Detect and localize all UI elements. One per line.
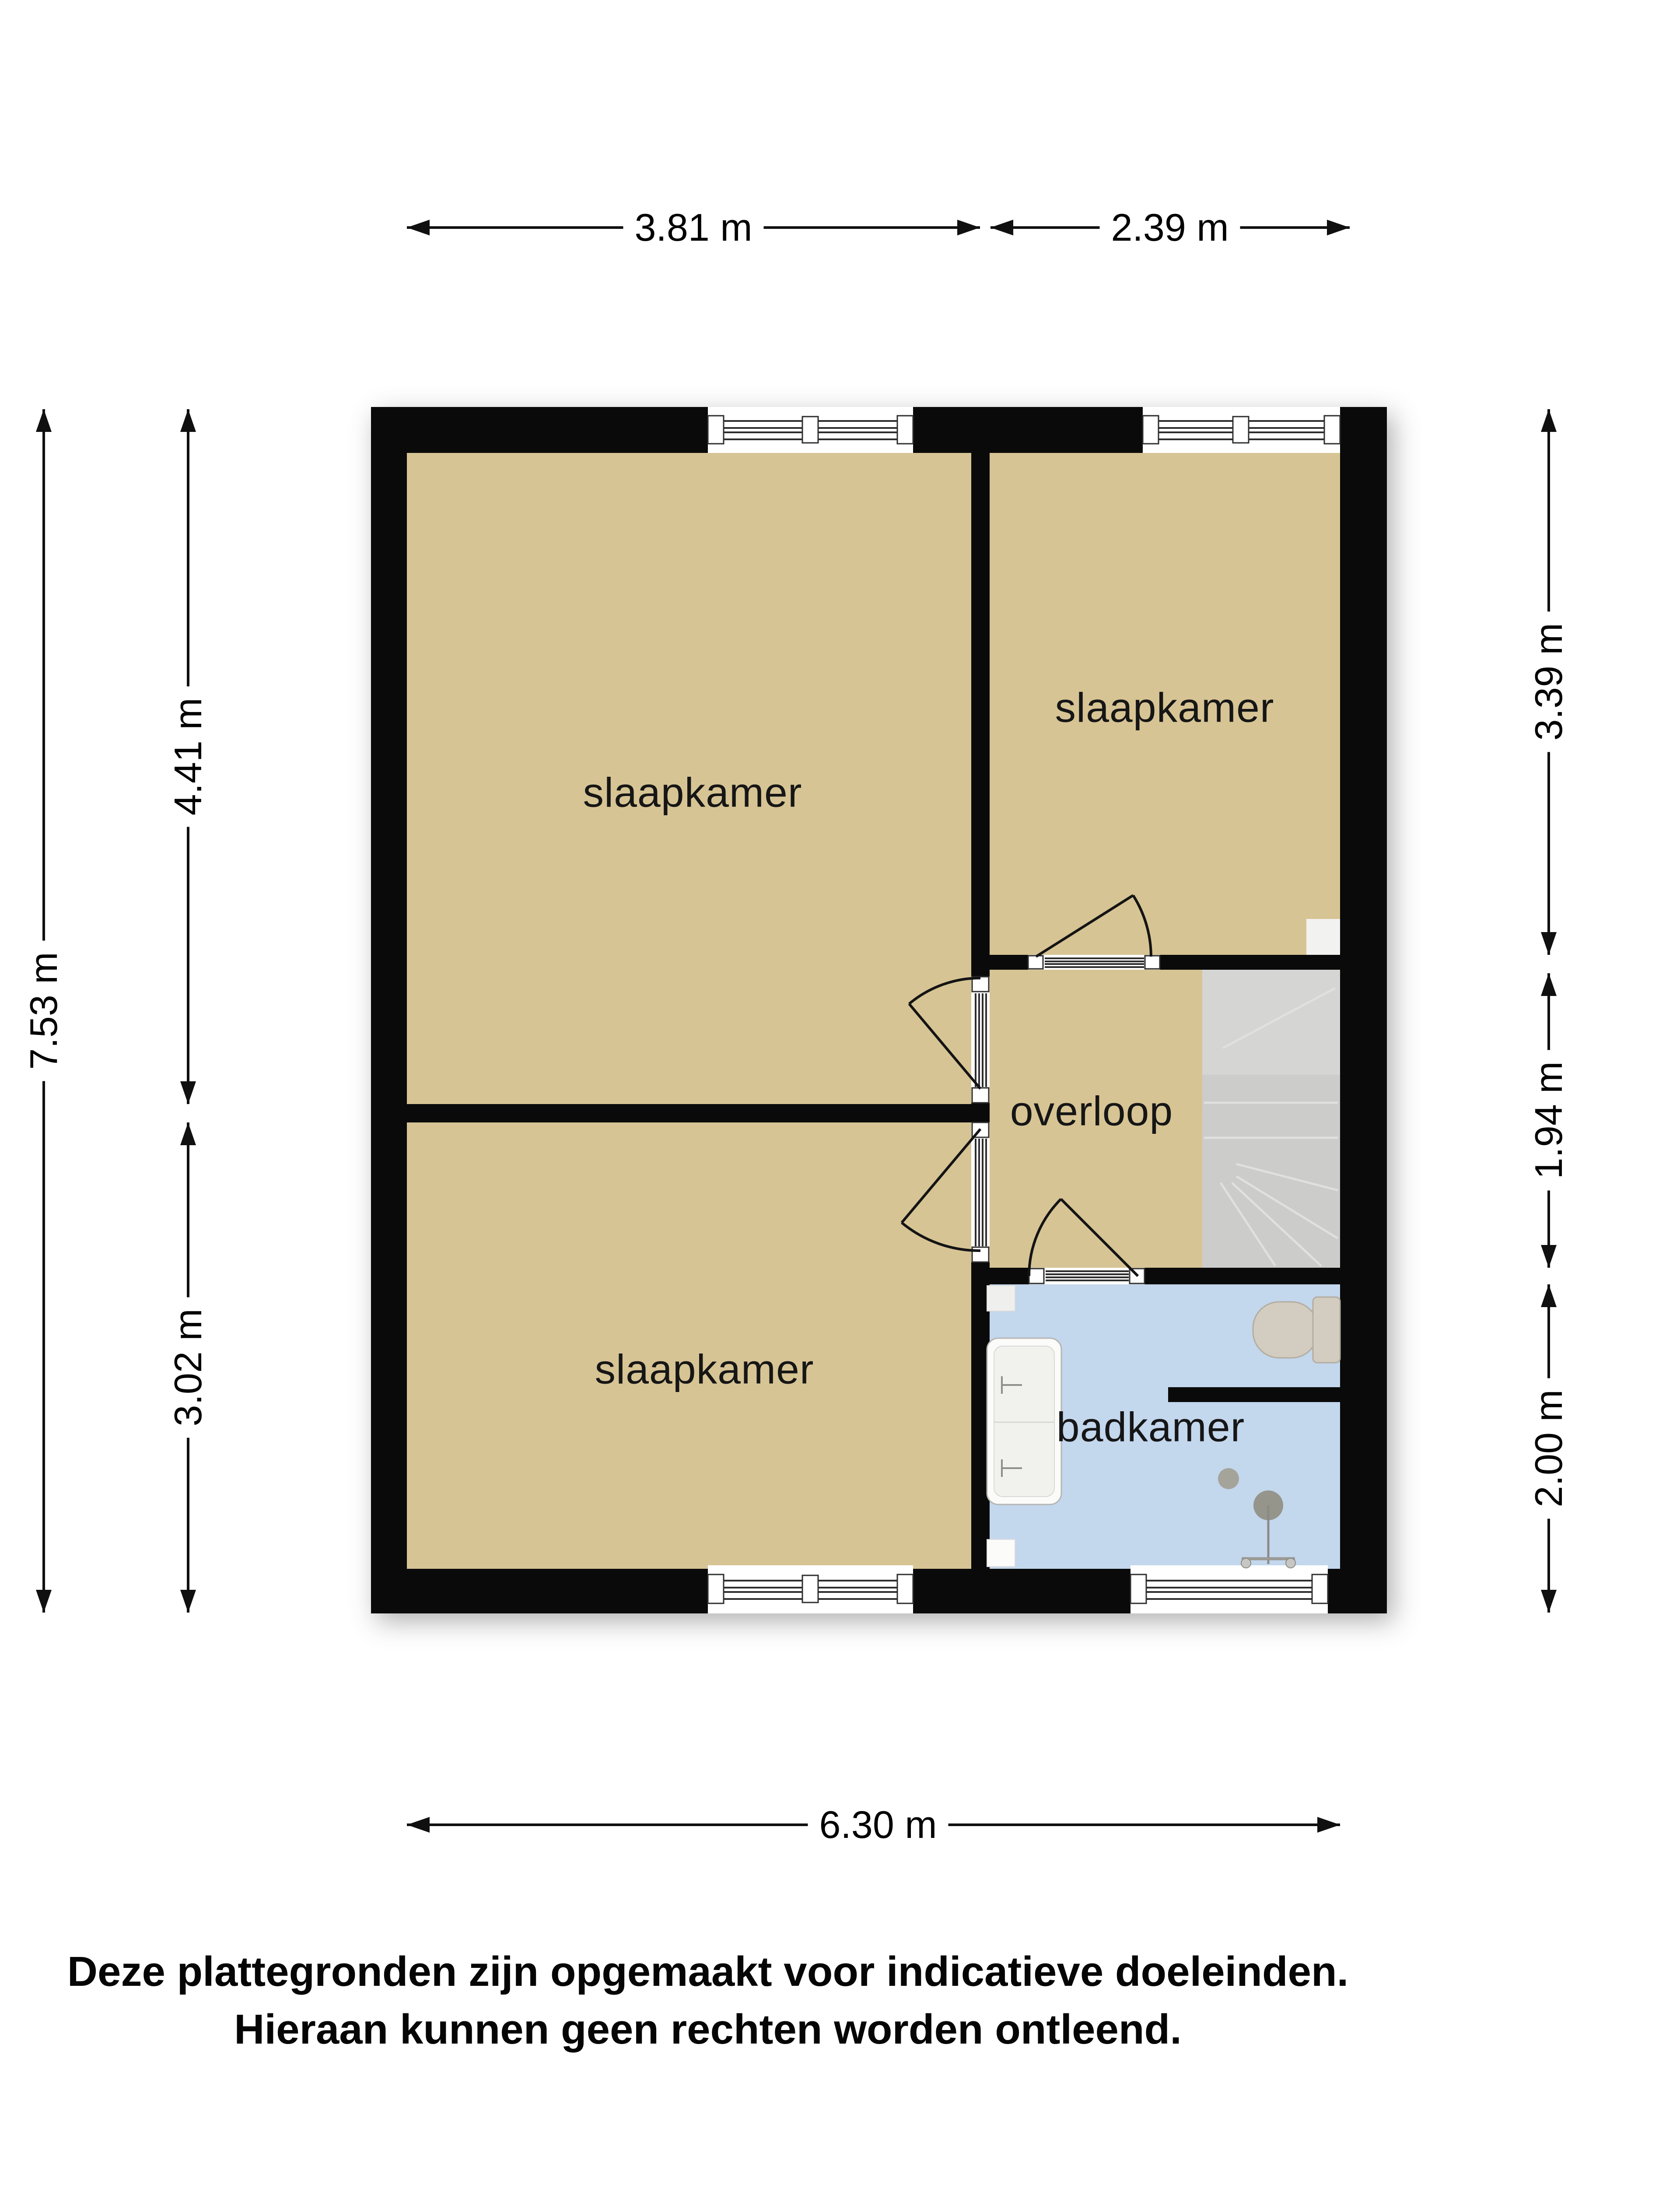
dimension-label-right-lower: 2.00 m xyxy=(1527,1378,1571,1518)
disclaimer-text: Deze plattegronden zijn opgemaakt voor i… xyxy=(0,1943,1416,2058)
disclaimer-line-2: Hieraan kunnen geen rechten worden ontle… xyxy=(0,2001,1416,2058)
door-frame-bedroom-top-right xyxy=(1028,955,1160,970)
door-frame-bedroom-top-left xyxy=(971,977,990,1103)
room-label-bedroom-bottom-left: slaapkamer xyxy=(595,1346,814,1394)
window-bottom-left xyxy=(708,1565,913,1613)
window-top-left xyxy=(708,407,913,453)
dimension-label-left-upper: 4.41 m xyxy=(166,686,210,827)
dimension-label-bottom: 6.30 m xyxy=(808,1803,948,1847)
dimension-label-right-upper: 3.39 m xyxy=(1527,611,1571,752)
window-top-right xyxy=(1143,407,1340,453)
stairwell-void xyxy=(1306,919,1340,955)
dimension-label-top-right: 2.39 m xyxy=(1099,206,1240,249)
door-frame-bathroom xyxy=(1029,1268,1144,1284)
washbasin-small xyxy=(987,1286,1015,1311)
bathtub xyxy=(987,1338,1061,1504)
dimension-label-top-left: 3.81 m xyxy=(623,206,763,249)
dimension-label-right-middle: 1.94 m xyxy=(1527,1050,1571,1190)
door-frame-bedroom-bottom-left xyxy=(971,1122,990,1262)
room-label-bedroom-top-right: slaapkamer xyxy=(1055,684,1274,732)
disclaimer-line-1: Deze plattegronden zijn opgemaakt voor i… xyxy=(0,1943,1416,2001)
window-bathroom xyxy=(1130,1565,1328,1613)
room-label-bathroom: badkamer xyxy=(1057,1404,1245,1452)
dimension-label-left-total: 7.53 m xyxy=(22,940,66,1081)
shower-drain-icon xyxy=(1218,1468,1239,1489)
dimension-label-left-lower: 3.02 m xyxy=(166,1297,210,1438)
bathroom-stub-wall xyxy=(1168,1387,1352,1402)
bathroom-cabinet xyxy=(987,1539,1015,1567)
floorplan-drawing xyxy=(0,0,1680,2188)
room-label-landing: overloop xyxy=(1010,1088,1173,1136)
toilet xyxy=(1253,1297,1340,1363)
floorplan-page: slaapkamer slaapkamer slaapkamer overloo… xyxy=(0,0,1680,2188)
room-label-bedroom-top-left: slaapkamer xyxy=(583,769,802,817)
